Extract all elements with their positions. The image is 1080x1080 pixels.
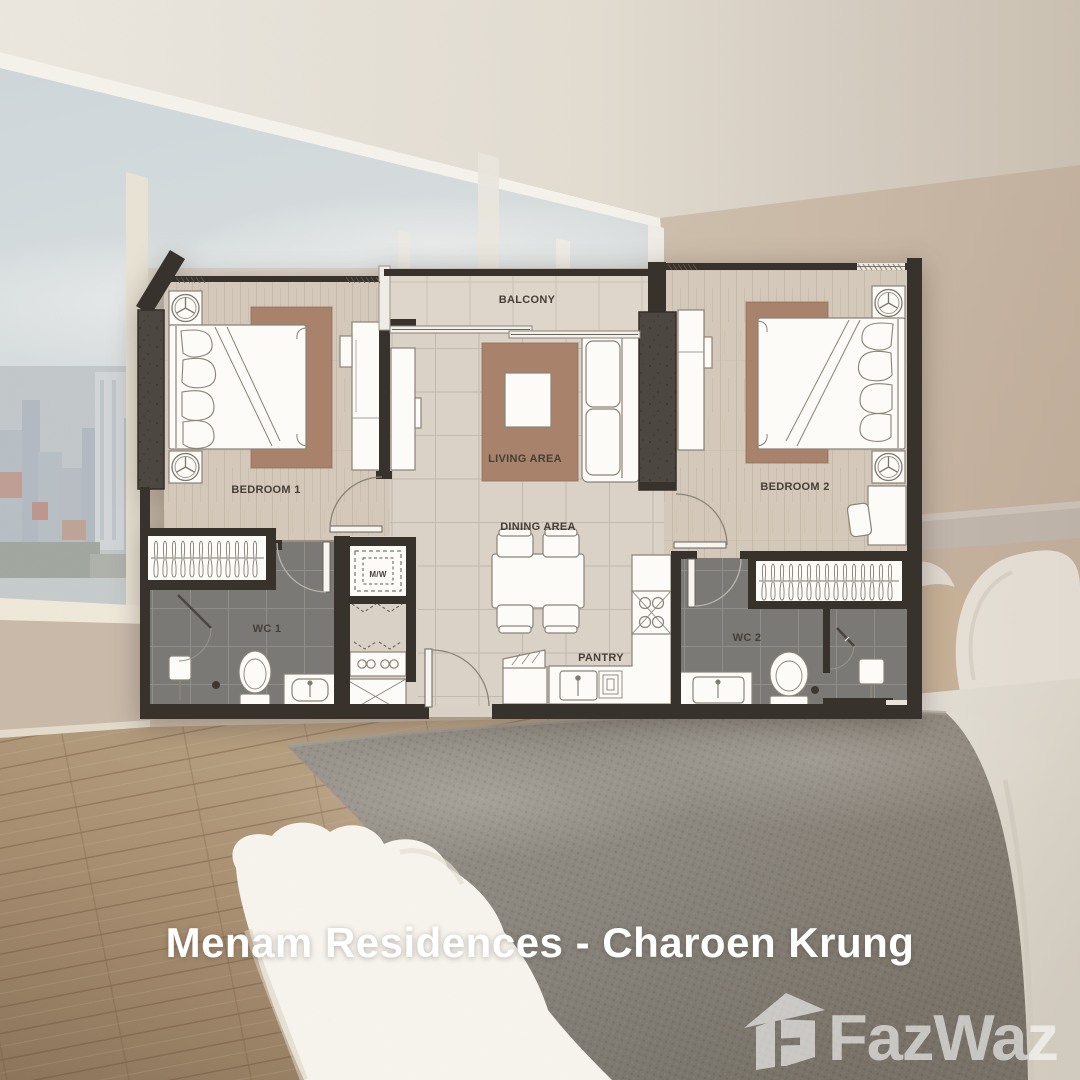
svg-text:FazWaz: FazWaz bbox=[828, 1001, 1058, 1074]
